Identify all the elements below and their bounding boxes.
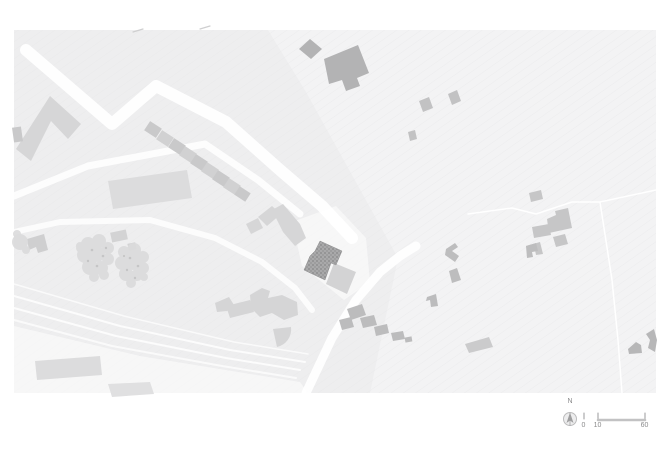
north-label: N — [563, 398, 577, 406]
scale-label-10: 10 — [592, 422, 603, 430]
drawing-canvas: N 0 10 60 — [0, 0, 670, 473]
legend-graphics — [564, 413, 646, 426]
scale-label-0: 0 — [579, 422, 588, 430]
scale-label-60: 60 — [639, 422, 650, 430]
